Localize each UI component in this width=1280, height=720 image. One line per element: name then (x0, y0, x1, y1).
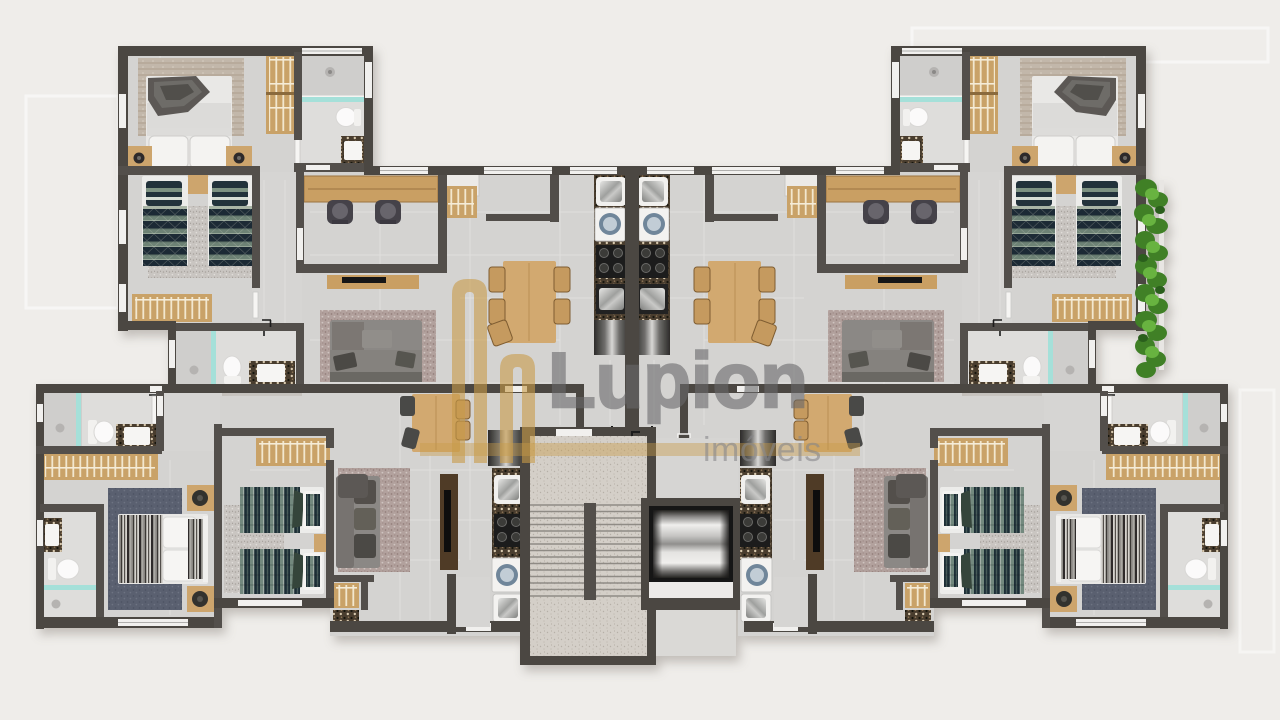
svg-text:imóveis: imóveis (703, 431, 822, 469)
svg-text:Lupion: Lupion (548, 336, 808, 424)
